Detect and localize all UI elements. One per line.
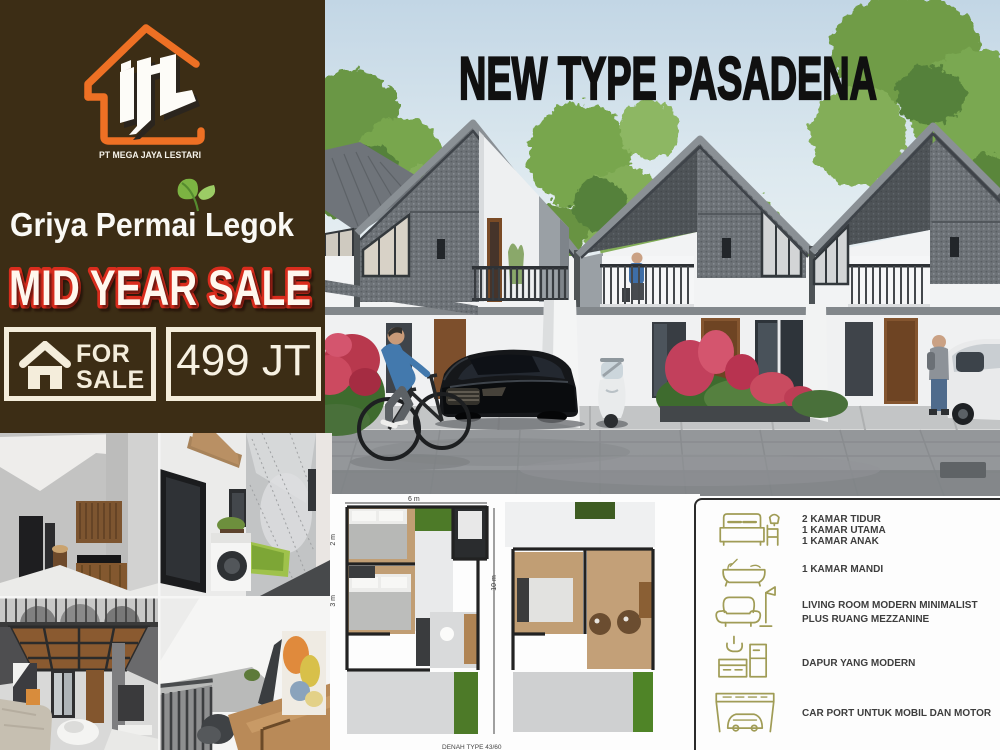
- svg-text:DENAH TYPE 43/60: DENAH TYPE 43/60: [442, 744, 502, 750]
- svg-text:2 m: 2 m: [330, 534, 337, 546]
- svg-text:6 m: 6 m: [408, 496, 420, 503]
- svg-text:DAPUR YANG MODERN: DAPUR YANG MODERN: [802, 658, 915, 669]
- svg-text:MID YEAR SALE: MID YEAR SALE: [9, 260, 311, 316]
- svg-text:CAR PORT UNTUK MOBIL DAN MOTOR: CAR PORT UNTUK MOBIL DAN MOTOR: [802, 708, 992, 719]
- svg-text:Griya Permai Legok: Griya Permai Legok: [10, 206, 295, 243]
- svg-text:3 m: 3 m: [330, 595, 337, 607]
- svg-text:2 KAMAR TIDUR: 2 KAMAR TIDUR: [802, 514, 882, 525]
- svg-text:1 KAMAR MANDI: 1 KAMAR MANDI: [802, 564, 883, 575]
- svg-text:PT MEGA JAYA LESTARI: PT MEGA JAYA LESTARI: [99, 150, 201, 161]
- svg-text:LIVING ROOM MODERN MINIMALIST: LIVING ROOM MODERN MINIMALIST: [802, 600, 978, 611]
- svg-text:1 KAMAR UTAMA: 1 KAMAR UTAMA: [802, 525, 886, 536]
- svg-text:PLUS RUANG MEZZANINE: PLUS RUANG MEZZANINE: [802, 614, 930, 625]
- svg-text:1 KAMAR ANAK: 1 KAMAR ANAK: [802, 536, 880, 547]
- svg-text:NEW TYPE PASADENA: NEW TYPE PASADENA: [459, 45, 877, 112]
